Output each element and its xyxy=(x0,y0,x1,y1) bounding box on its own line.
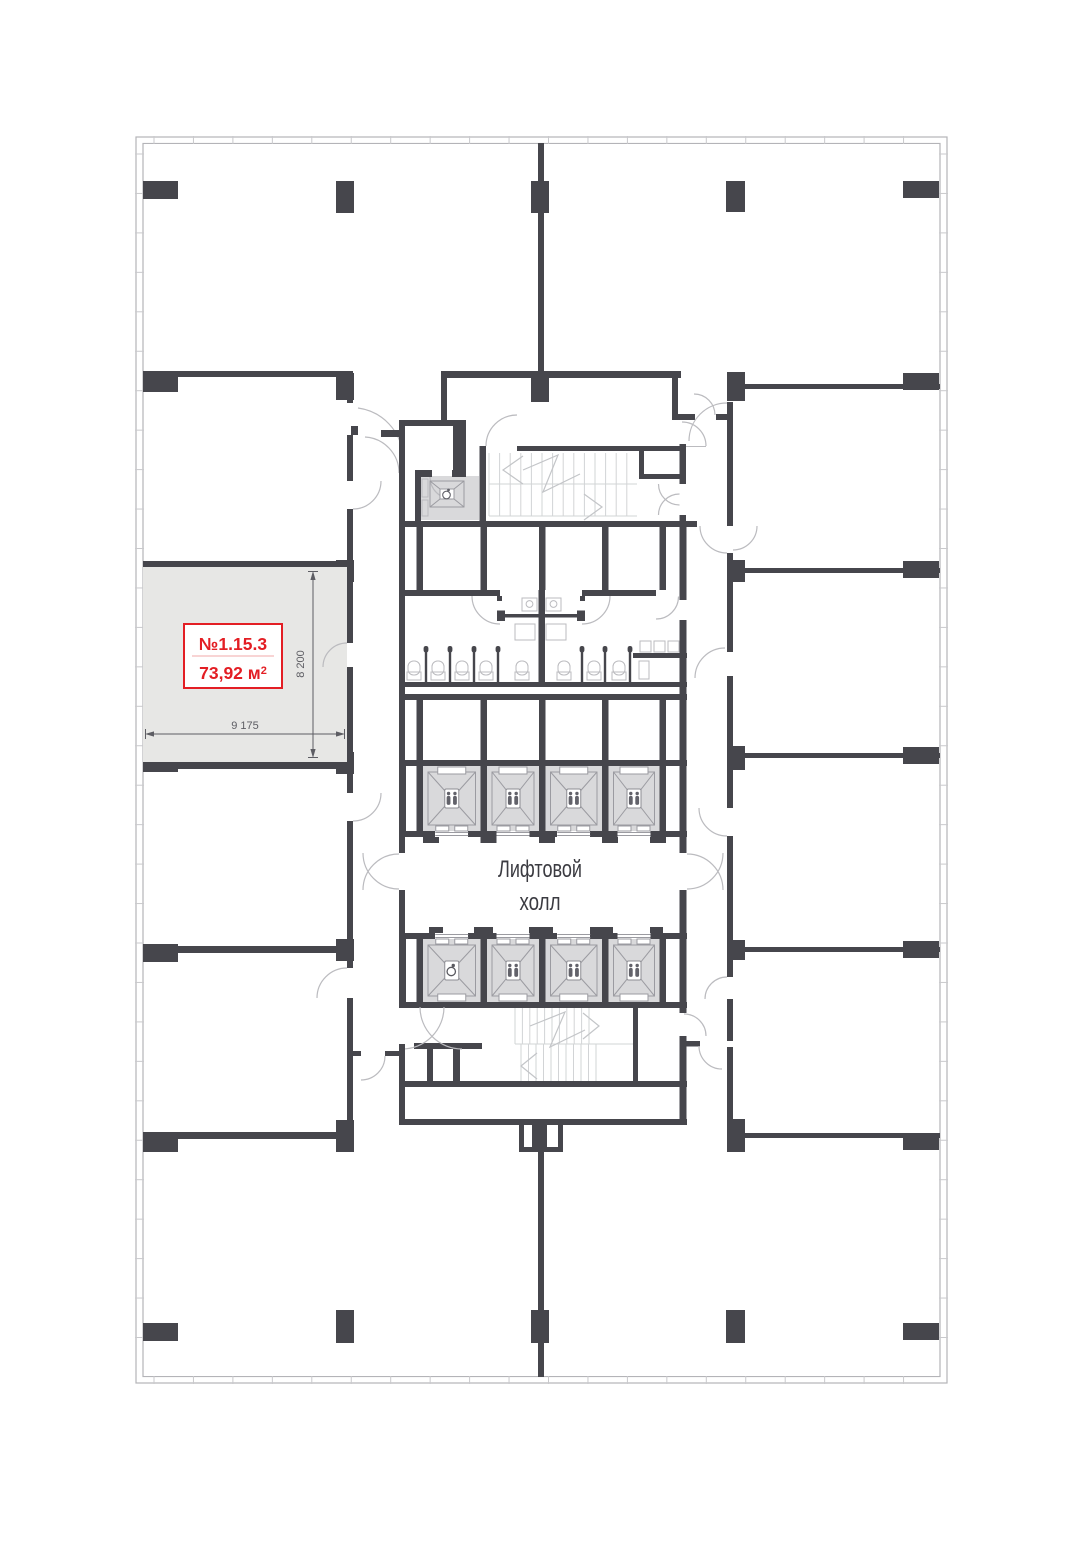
svg-text:73,92 м2: 73,92 м2 xyxy=(199,663,267,683)
svg-text:№1.15.3: №1.15.3 xyxy=(199,634,267,654)
svg-text:холл: холл xyxy=(520,889,561,916)
svg-text:9 175: 9 175 xyxy=(231,720,259,732)
svg-text:8 200: 8 200 xyxy=(295,650,307,678)
svg-text:Лифтовой: Лифтовой xyxy=(498,856,582,883)
